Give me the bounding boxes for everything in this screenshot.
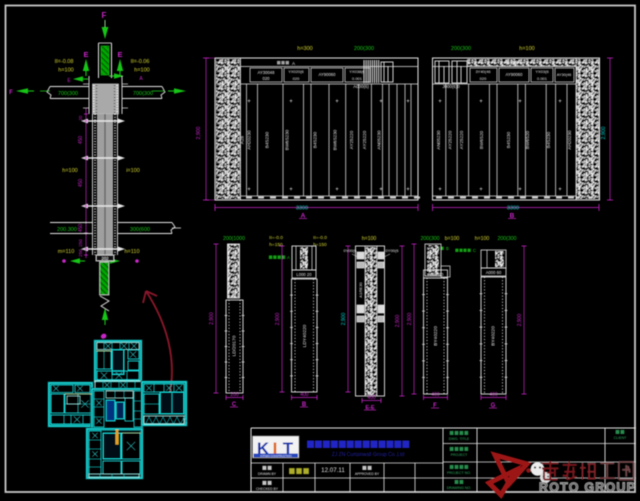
svg-text:DRAWING NO.: DRAWING NO. xyxy=(447,486,472,490)
svg-text:+: + xyxy=(247,99,251,105)
svg-text:B4S230: B4S230 xyxy=(546,131,551,148)
svg-text:C: C xyxy=(473,248,476,253)
svg-text:LD/20170: LD/20170 xyxy=(232,335,238,356)
svg-text:II=-0.0: II=-0.0 xyxy=(269,235,283,241)
svg-text:700(300: 700(300 xyxy=(58,91,78,97)
svg-text:+: + xyxy=(518,99,522,105)
svg-text:h=100: h=100 xyxy=(519,46,534,52)
svg-text:A000(6): A000(6) xyxy=(353,84,369,89)
svg-text:II=-0.08: II=-0.08 xyxy=(55,59,74,65)
svg-text:B: B xyxy=(521,61,524,66)
svg-text:+: + xyxy=(438,99,442,105)
svg-text:DRAWN BY: DRAWN BY xyxy=(258,472,277,476)
svg-text:A: A xyxy=(287,255,290,260)
svg-text:0.001: 0.001 xyxy=(352,76,363,81)
svg-text:h=300: h=300 xyxy=(297,46,312,52)
svg-text:700(300: 700(300 xyxy=(133,91,153,97)
svg-text:+: + xyxy=(247,187,251,193)
svg-text:h=150: h=150 xyxy=(269,242,283,248)
svg-text:AH20230: AH20230 xyxy=(247,130,252,150)
svg-text:B: B xyxy=(446,246,449,251)
svg-text:AY30(46: AY30(46 xyxy=(557,73,572,77)
svg-text:YX038(6: YX038(6 xyxy=(349,69,365,74)
svg-text:+: + xyxy=(518,187,522,193)
svg-text:B4S230: B4S230 xyxy=(265,131,270,148)
svg-text:BW6S20: BW6S20 xyxy=(525,130,530,149)
svg-text:ZJ ZN Curtainwall Group Co.,Lt: ZJ ZN Curtainwall Group Co.,Ltd xyxy=(332,452,405,458)
svg-text:A000 60: A000 60 xyxy=(428,272,444,277)
svg-text:DWG. TITLE: DWG. TITLE xyxy=(449,437,470,441)
svg-text:AH20230: AH20230 xyxy=(567,130,572,150)
svg-text:2,900: 2,900 xyxy=(407,313,413,326)
svg-text:450: 450 xyxy=(78,179,84,188)
svg-text:+: + xyxy=(335,187,339,193)
svg-text:0.001: 0.001 xyxy=(537,76,548,81)
svg-text:BY40220: BY40220 xyxy=(433,326,439,346)
svg-text:L000 20: L000 20 xyxy=(296,272,312,277)
svg-text:AY90060: AY90060 xyxy=(319,72,337,77)
svg-text:+: + xyxy=(558,99,562,105)
svg-text:3300: 3300 xyxy=(296,206,308,212)
svg-text:h=100: h=100 xyxy=(134,68,149,74)
svg-text:BW6S230: BW6S230 xyxy=(333,129,338,150)
svg-text:+: + xyxy=(558,187,562,193)
svg-text:12.07.11: 12.07.11 xyxy=(321,467,345,474)
svg-text:300(600: 300(600 xyxy=(130,227,150,233)
svg-text:h=100: h=100 xyxy=(475,236,490,242)
svg-text:2,900: 2,900 xyxy=(517,314,523,327)
svg-text:AN05230: AN05230 xyxy=(377,130,382,150)
svg-text:400: 400 xyxy=(300,392,309,398)
svg-text:E: E xyxy=(117,50,122,59)
svg-text:+: + xyxy=(335,99,339,105)
svg-text:h=150: h=150 xyxy=(313,242,327,248)
svg-text:202: 202 xyxy=(102,256,110,261)
svg-text:200: 200 xyxy=(230,392,239,398)
svg-text:A28: A28 xyxy=(240,135,245,144)
svg-text:APPROVED BY: APPROVED BY xyxy=(355,472,380,476)
svg-text:F: F xyxy=(9,90,13,96)
svg-text:AY90060: AY90060 xyxy=(506,72,524,77)
svg-text:b=100: b=100 xyxy=(445,236,460,242)
svg-text:II=-0.06: II=-0.06 xyxy=(131,59,150,65)
svg-text:3300: 3300 xyxy=(507,206,519,212)
svg-text:2,900: 2,900 xyxy=(395,315,401,328)
svg-text:400: 400 xyxy=(431,392,440,398)
svg-text:200(1000: 200(1000 xyxy=(223,236,245,242)
svg-text:+: + xyxy=(406,99,410,105)
svg-text:+: + xyxy=(479,187,483,193)
svg-text:400: 400 xyxy=(367,395,376,401)
svg-text:+: + xyxy=(479,99,483,105)
svg-text:250: 250 xyxy=(78,239,83,247)
svg-text:2,900: 2,900 xyxy=(196,126,202,139)
svg-text:AY25220: AY25220 xyxy=(448,130,453,149)
svg-text:B4S230: B4S230 xyxy=(506,131,511,148)
svg-text:E: E xyxy=(83,50,88,59)
svg-text:+: + xyxy=(289,187,293,193)
svg-text:20: 20 xyxy=(78,115,83,120)
svg-text:YX020(6: YX020(6 xyxy=(288,69,304,74)
svg-text:KITSEN CONSTRUCTION: KITSEN CONSTRUCTION xyxy=(261,454,292,458)
svg-text:200(300: 200(300 xyxy=(354,46,374,52)
svg-text:200.300: 200.300 xyxy=(57,227,77,233)
svg-text:2,900: 2,900 xyxy=(341,313,347,326)
svg-text:020: 020 xyxy=(293,76,300,81)
svg-text:200(300: 200(300 xyxy=(497,236,516,242)
svg-text:PROJECT NO.: PROJECT NO. xyxy=(447,471,471,475)
svg-text:450: 450 xyxy=(78,224,84,233)
svg-text:h=100: h=100 xyxy=(62,168,77,174)
svg-text:h=100: h=100 xyxy=(58,68,73,74)
svg-text:ROTO GROUP: ROTO GROUP xyxy=(539,481,636,495)
svg-text:CLIENT: CLIENT xyxy=(614,436,628,440)
svg-text:A1/5E30: A1/5E30 xyxy=(358,282,363,298)
svg-text:B4S230: B4S230 xyxy=(312,131,317,148)
svg-text:m=110: m=110 xyxy=(58,249,75,255)
svg-text:BW6S20: BW6S20 xyxy=(479,130,484,149)
svg-text:400: 400 xyxy=(489,392,498,398)
svg-text:2,900: 2,900 xyxy=(209,312,215,325)
svg-text:h=100: h=100 xyxy=(362,236,377,242)
svg-text:+: + xyxy=(289,99,293,105)
svg-text:+: + xyxy=(379,99,383,105)
svg-text:+: + xyxy=(379,187,383,193)
svg-text:+: + xyxy=(438,187,442,193)
svg-text:AY30048: AY30048 xyxy=(258,70,276,75)
svg-text:F: F xyxy=(102,11,107,20)
svg-text:II=-0.0: II=-0.0 xyxy=(313,235,327,241)
svg-text:020: 020 xyxy=(480,76,487,81)
svg-text:A000 60: A000 60 xyxy=(486,270,502,275)
svg-text:AY25220: AY25220 xyxy=(459,130,464,149)
svg-text:250: 250 xyxy=(78,249,83,257)
svg-text:AN05230: AN05230 xyxy=(436,130,441,150)
svg-text:AY25220: AY25220 xyxy=(349,130,354,149)
svg-text:LDY40220: LDY40220 xyxy=(302,324,308,347)
svg-text:AY25220: AY25220 xyxy=(362,130,367,149)
svg-text:BW6S230: BW6S230 xyxy=(285,129,290,150)
svg-text:200(300: 200(300 xyxy=(451,46,471,52)
svg-text:0Y00(6: 0Y00(6 xyxy=(386,248,400,253)
svg-text:CHECKED BY: CHECKED BY xyxy=(256,487,279,491)
svg-text:PROJECT: PROJECT xyxy=(451,453,469,457)
svg-text:+: + xyxy=(406,187,410,193)
svg-text:BY40220: BY40220 xyxy=(491,326,497,346)
svg-text:2,900: 2,900 xyxy=(601,126,607,139)
svg-text:020: 020 xyxy=(263,76,271,81)
svg-text:h=110: h=110 xyxy=(124,249,139,255)
svg-text:450: 450 xyxy=(78,136,84,145)
svg-text:2,900: 2,900 xyxy=(275,313,281,326)
svg-text:3Y40(46: 3Y40(46 xyxy=(475,69,491,74)
svg-text:YX03(6: YX03(6 xyxy=(535,69,549,74)
svg-text:i=100: i=100 xyxy=(126,168,140,174)
svg-text:200(300: 200(300 xyxy=(420,236,439,242)
